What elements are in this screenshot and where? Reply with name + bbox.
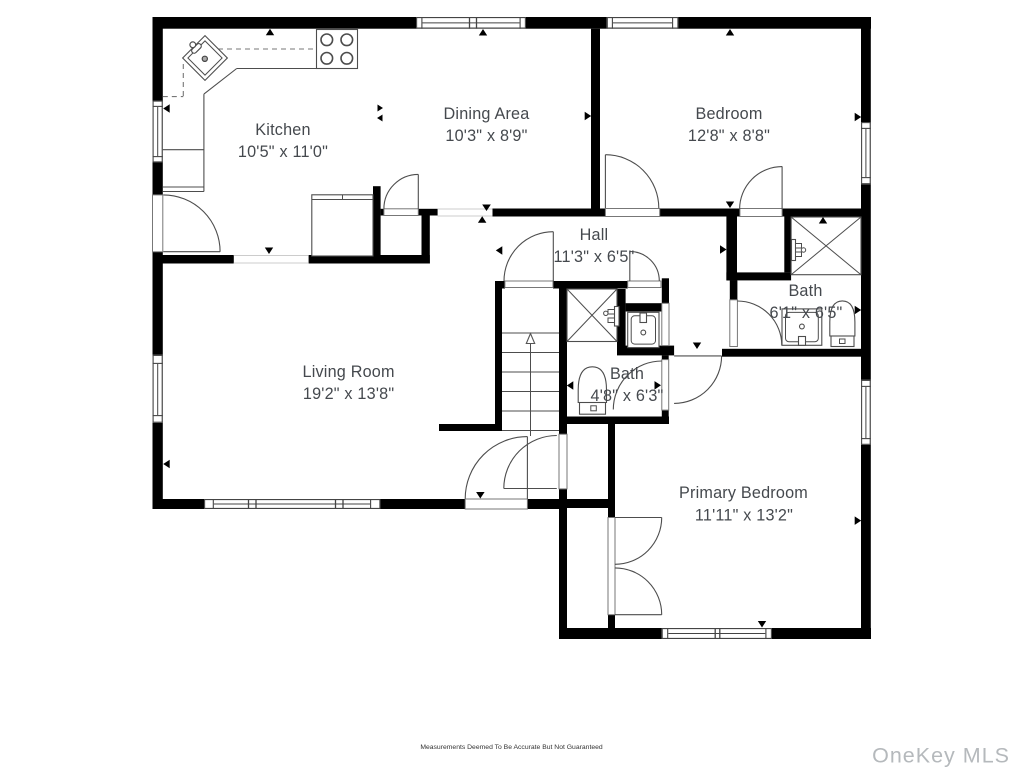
svg-text:19'2" x 13'8": 19'2" x 13'8" — [303, 385, 394, 403]
svg-text:OneKey MLS: OneKey MLS — [872, 744, 1010, 768]
svg-text:Hall: Hall — [580, 226, 609, 244]
svg-text:11'11" x 13'2": 11'11" x 13'2" — [695, 507, 793, 525]
svg-text:Bath: Bath — [788, 282, 822, 300]
svg-text:Primary Bedroom: Primary Bedroom — [679, 484, 808, 502]
svg-text:4'8" x 6'3": 4'8" x 6'3" — [591, 387, 664, 405]
svg-text:10'5" x 11'0": 10'5" x 11'0" — [238, 143, 328, 161]
svg-text:11'3" x 6'5": 11'3" x 6'5" — [554, 248, 635, 266]
svg-text:6'1" x 6'5": 6'1" x 6'5" — [770, 304, 843, 322]
svg-text:Kitchen: Kitchen — [255, 121, 310, 139]
svg-text:12'8" x 8'8": 12'8" x 8'8" — [688, 127, 770, 145]
svg-text:10'3" x 8'9": 10'3" x 8'9" — [445, 127, 527, 145]
svg-text:Living Room: Living Room — [303, 363, 395, 381]
svg-text:Measurements Deemed To Be Accu: Measurements Deemed To Be Accurate But N… — [420, 744, 603, 751]
svg-text:Dining Area: Dining Area — [444, 105, 530, 123]
svg-text:Bath: Bath — [610, 365, 644, 383]
svg-text:Bedroom: Bedroom — [695, 105, 762, 123]
